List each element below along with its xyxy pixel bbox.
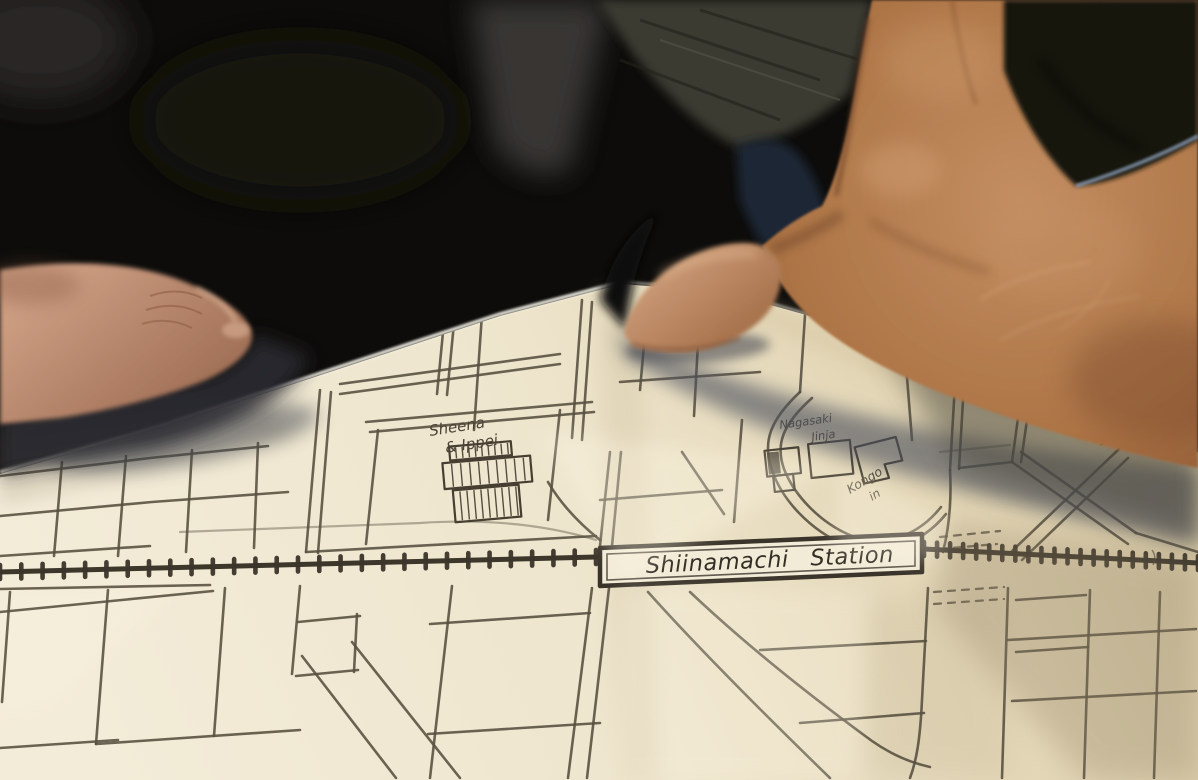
thumb-tip-sheen <box>222 322 250 338</box>
sheen-wedge-below <box>606 588 872 780</box>
knuckle-highlight-1 <box>860 144 940 196</box>
torso-shade <box>140 40 460 200</box>
photo-of-hand-drawn-map: Sheena & Ippei Nagasaki Jinja Kongo in S… <box>0 0 1198 780</box>
knuckle-highlight-2 <box>880 20 1000 100</box>
photo-stage: Sheena & Ippei Nagasaki Jinja Kongo in S… <box>0 0 1198 780</box>
